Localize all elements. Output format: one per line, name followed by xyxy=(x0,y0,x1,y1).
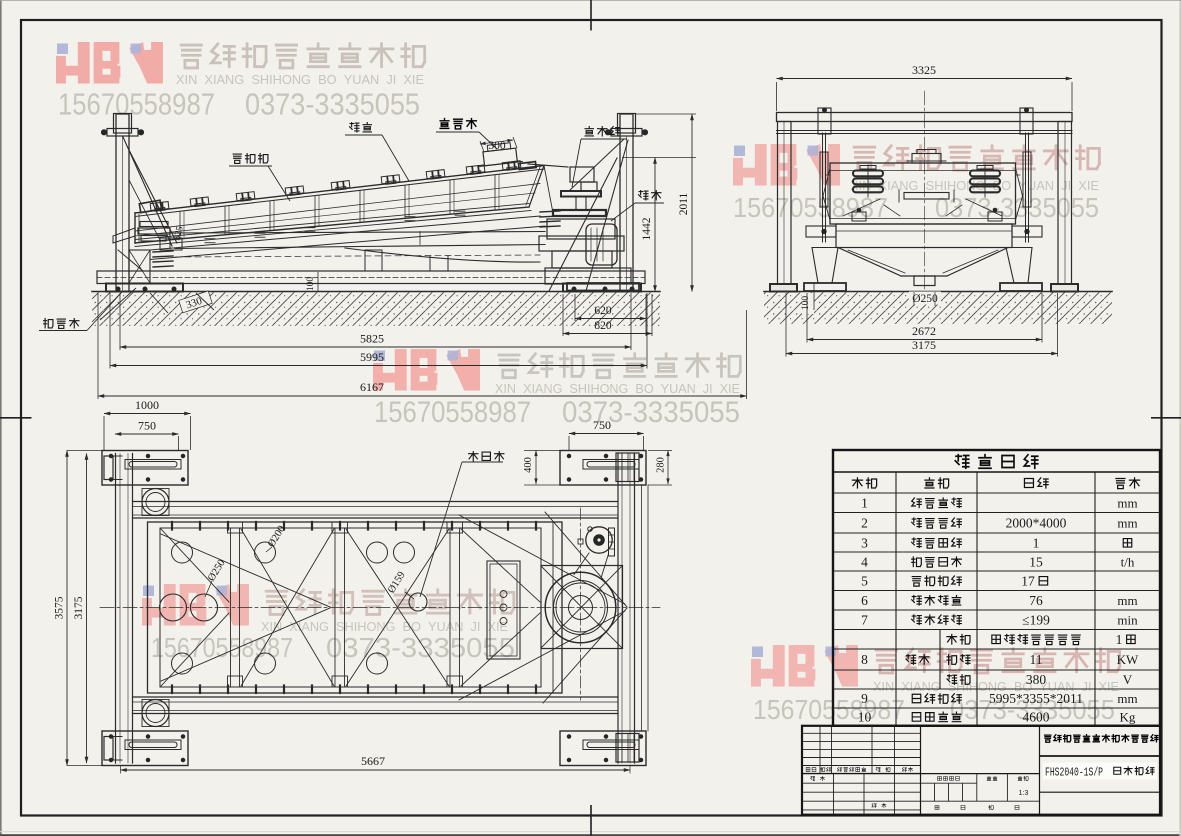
svg-text:2000*4000: 2000*4000 xyxy=(1006,515,1067,530)
svg-text:620: 620 xyxy=(594,305,612,317)
svg-text:400: 400 xyxy=(523,457,534,473)
svg-text:380: 380 xyxy=(1026,672,1047,687)
svg-text:100: 100 xyxy=(801,296,811,311)
svg-text:3175: 3175 xyxy=(73,596,85,619)
svg-text:4: 4 xyxy=(861,554,868,569)
svg-text:FHS2040-1S/P: FHS2040-1S/P xyxy=(1045,766,1103,780)
svg-text:mm: mm xyxy=(1117,495,1137,510)
svg-text:11: 11 xyxy=(1030,652,1043,667)
svg-text:min: min xyxy=(1117,612,1138,627)
svg-text:XIN XIANG SHIHONG BO YUAN: XIN XIANG SHIHONG BO YUAN JI XIE xyxy=(176,73,424,87)
svg-text:2672: 2672 xyxy=(912,324,936,338)
svg-text:1: 1 xyxy=(1033,535,1040,550)
svg-text:100: 100 xyxy=(306,277,316,292)
svg-text:1: 1 xyxy=(861,495,868,510)
svg-text:17: 17 xyxy=(1021,573,1035,588)
svg-text:0373-3335055: 0373-3335055 xyxy=(562,396,740,429)
svg-text:3325: 3325 xyxy=(912,63,936,77)
svg-text:5825: 5825 xyxy=(360,332,384,346)
svg-text:1000: 1000 xyxy=(135,398,159,412)
svg-text:7: 7 xyxy=(861,612,868,627)
svg-text:280: 280 xyxy=(656,457,667,473)
svg-text:1442: 1442 xyxy=(641,217,653,240)
svg-text:15670558987: 15670558987 xyxy=(58,87,215,122)
svg-text:5995*3355*2011: 5995*3355*2011 xyxy=(989,691,1083,706)
svg-text:mm: mm xyxy=(1117,593,1137,608)
svg-text:4600: 4600 xyxy=(1023,709,1050,724)
svg-text:3575: 3575 xyxy=(54,596,66,619)
svg-text:KW: KW xyxy=(1117,652,1139,667)
svg-text:3175: 3175 xyxy=(912,338,936,352)
svg-text:8: 8 xyxy=(861,652,868,667)
svg-text:1: 1 xyxy=(1116,632,1123,647)
svg-text:9: 9 xyxy=(861,691,868,706)
svg-text:Ø250: Ø250 xyxy=(912,293,938,305)
svg-text:mm: mm xyxy=(1117,515,1137,530)
svg-text:2011: 2011 xyxy=(678,192,690,215)
svg-text:3: 3 xyxy=(861,535,868,550)
svg-text:15670558987: 15670558987 xyxy=(374,396,531,429)
svg-text:76: 76 xyxy=(1029,593,1043,608)
svg-text:15670558987: 15670558987 xyxy=(753,694,905,725)
svg-text:5: 5 xyxy=(861,573,868,588)
svg-text:0373-3335055: 0373-3335055 xyxy=(245,87,420,122)
svg-text:5995: 5995 xyxy=(360,350,384,364)
svg-text:750: 750 xyxy=(593,418,611,432)
svg-text:6167: 6167 xyxy=(360,380,384,394)
svg-text:t/h: t/h xyxy=(1121,554,1135,569)
svg-text:750: 750 xyxy=(138,419,156,433)
svg-text:≤199: ≤199 xyxy=(1022,612,1050,627)
svg-text:XIN XIANG SHIHONG BO YUAN: XIN XIANG SHIHONG BO YUAN JI XIE xyxy=(495,382,740,396)
svg-text:2: 2 xyxy=(861,515,868,530)
svg-text:6: 6 xyxy=(861,593,868,608)
svg-text:5667: 5667 xyxy=(361,754,385,768)
svg-text:10: 10 xyxy=(858,709,872,724)
svg-text:820: 820 xyxy=(594,320,612,332)
svg-text:1:3: 1:3 xyxy=(1019,790,1029,797)
svg-text:mm: mm xyxy=(1117,691,1137,706)
svg-text:V: V xyxy=(1123,672,1133,687)
svg-text:15: 15 xyxy=(1029,554,1043,569)
svg-text:Kg: Kg xyxy=(1120,709,1136,724)
